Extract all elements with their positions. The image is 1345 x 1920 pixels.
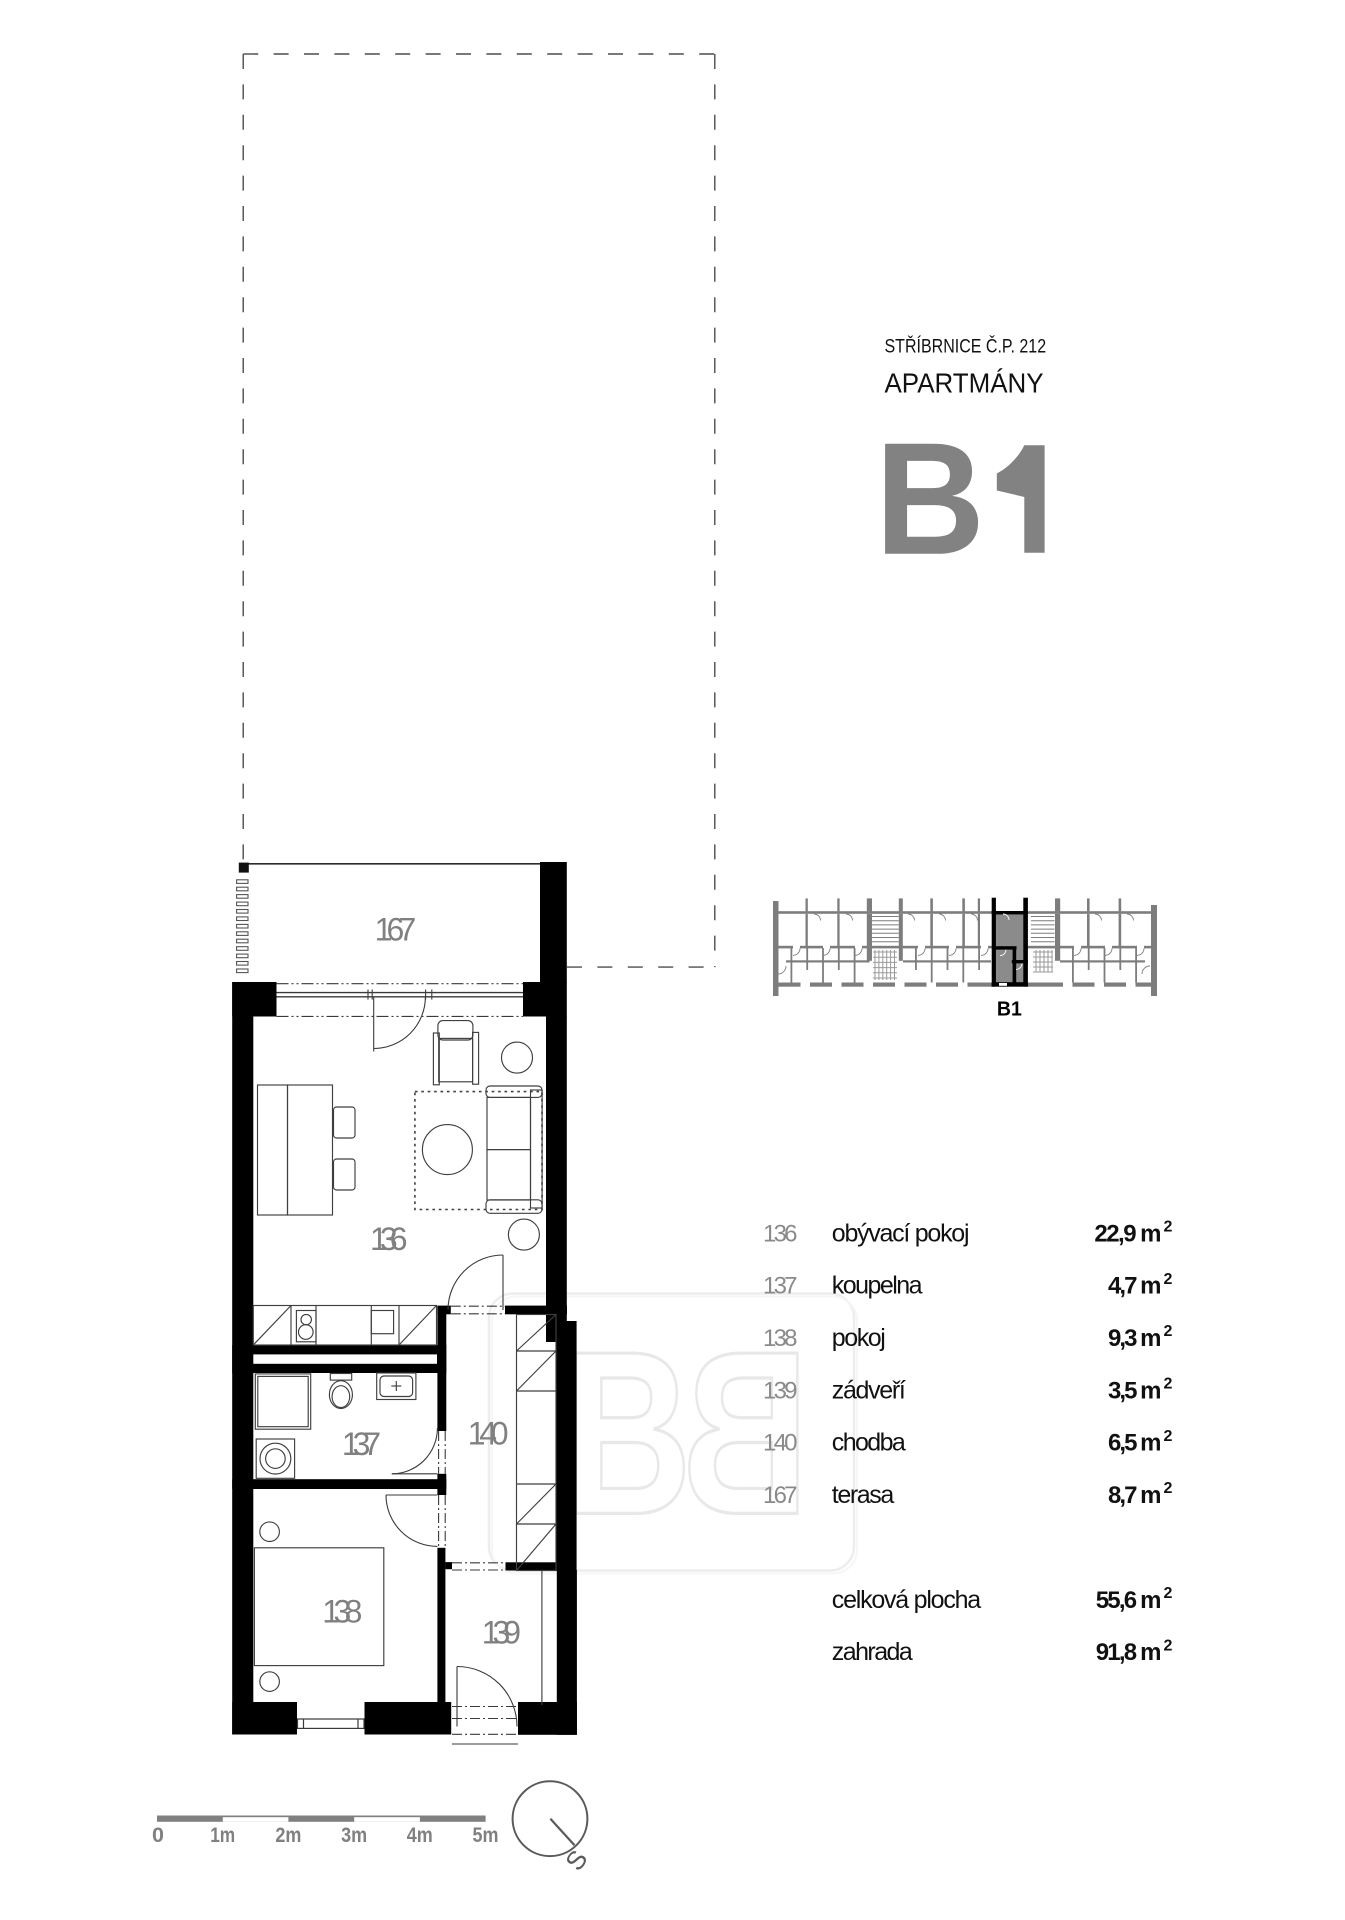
svg-text:4,7 m: 4,7 m [1108, 1273, 1162, 1300]
svg-text:2: 2 [1164, 1638, 1173, 1655]
svg-text:137: 137 [763, 1273, 798, 1300]
svg-text:zádveří: zádveří [832, 1376, 906, 1404]
svg-text:2m: 2m [275, 1823, 301, 1847]
svg-text:2: 2 [1164, 1271, 1173, 1288]
svg-text:STŘÍBRNICE Č.P. 212: STŘÍBRNICE Č.P. 212 [885, 336, 1047, 358]
svg-text:140: 140 [468, 1416, 509, 1452]
svg-text:1m: 1m [210, 1823, 235, 1847]
svg-text:138: 138 [322, 1594, 362, 1630]
svg-text:136: 136 [370, 1221, 408, 1257]
svg-text:22,9 m: 22,9 m [1094, 1220, 1161, 1247]
svg-text:APARTMÁNY: APARTMÁNY [885, 368, 1044, 399]
svg-text:136: 136 [763, 1220, 798, 1247]
svg-text:167: 167 [375, 912, 417, 948]
svg-text:8,7 m: 8,7 m [1108, 1482, 1162, 1509]
svg-text:2: 2 [1164, 1480, 1173, 1497]
svg-text:2: 2 [1164, 1428, 1173, 1445]
svg-text:6,5 m: 6,5 m [1108, 1430, 1162, 1457]
svg-text:138: 138 [763, 1325, 798, 1352]
svg-text:B: B [564, 1303, 692, 1563]
svg-text:137: 137 [342, 1426, 381, 1462]
svg-text:139: 139 [763, 1377, 798, 1404]
svg-text:5m: 5m [473, 1823, 499, 1847]
svg-text:2: 2 [1164, 1376, 1173, 1393]
svg-text:obývací pokoj: obývací pokoj [832, 1219, 970, 1247]
svg-text:terasa: terasa [832, 1481, 895, 1509]
svg-text:zahrada: zahrada [832, 1638, 913, 1666]
svg-text:55,6 m: 55,6 m [1096, 1587, 1162, 1614]
svg-text:3,5 m: 3,5 m [1108, 1377, 1162, 1404]
svg-text:celková plocha: celková plocha [832, 1586, 981, 1614]
svg-text:91,8 m: 91,8 m [1096, 1639, 1162, 1666]
svg-text:167: 167 [763, 1482, 798, 1509]
svg-text:2: 2 [1164, 1323, 1173, 1340]
svg-text:2: 2 [1164, 1585, 1173, 1602]
svg-text:0: 0 [152, 1823, 164, 1847]
svg-text:B: B [875, 410, 985, 588]
svg-text:139: 139 [482, 1615, 521, 1651]
svg-text:140: 140 [763, 1430, 798, 1457]
svg-text:koupelna: koupelna [832, 1272, 923, 1300]
svg-text:9,3 m: 9,3 m [1108, 1325, 1162, 1352]
svg-text:2: 2 [1164, 1219, 1173, 1236]
svg-text:chodba: chodba [832, 1429, 906, 1457]
svg-text:4m: 4m [407, 1823, 433, 1847]
svg-text:3m: 3m [341, 1823, 367, 1847]
svg-text:B1: B1 [997, 999, 1022, 1021]
svg-text:pokoj: pokoj [832, 1324, 886, 1352]
